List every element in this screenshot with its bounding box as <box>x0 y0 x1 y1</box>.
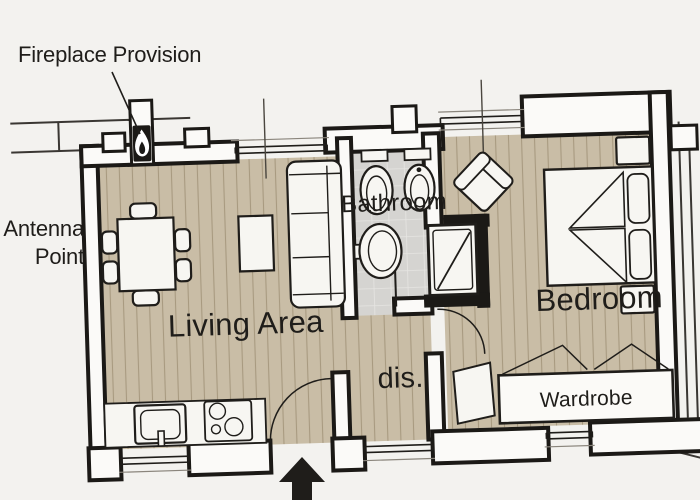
dining-table <box>117 218 175 292</box>
window-bedroom-top <box>438 109 525 130</box>
sofa <box>287 160 346 308</box>
double-bed <box>544 166 656 285</box>
fireplace-provision-label: Fireplace Provision <box>18 42 201 67</box>
wall-pilaster-left <box>103 133 126 152</box>
floor-plan: Wardrobe Living Area Bathroom Bedroom di… <box>0 0 700 500</box>
neighbour-wall-stub <box>671 125 698 150</box>
pillow <box>627 174 650 224</box>
wall-pilaster-right <box>185 128 210 147</box>
coffee-table <box>238 215 274 271</box>
dining-chair <box>103 261 119 283</box>
dining-chair <box>133 290 159 306</box>
wardrobe-label: Wardrobe <box>539 386 633 412</box>
wall-bottom-bedroom <box>590 419 700 455</box>
window-bedroom-bottom <box>544 431 594 447</box>
wall-bottom-kitchen <box>188 441 271 476</box>
bedroom-label: Bedroom <box>535 279 663 318</box>
nightstand <box>616 137 650 165</box>
living-area-label: Living Area <box>167 304 324 344</box>
antenna-point-label-line1: Antenna <box>3 216 85 241</box>
kitchen-sink <box>134 404 186 447</box>
bathroom-label: Bathroom <box>341 188 447 218</box>
window-living-top <box>231 138 329 154</box>
wall-bottom-hallway <box>432 428 549 464</box>
kitchen-counter <box>104 399 266 448</box>
dining-chair <box>130 203 156 219</box>
dining-chair <box>102 231 118 253</box>
wall-living-hallway <box>332 372 350 442</box>
floor-plan-page: Wardrobe Living Area Bathroom Bedroom di… <box>0 0 700 500</box>
pillow <box>629 230 652 280</box>
cooktop <box>204 400 252 441</box>
antenna-point-label-line2: Point <box>35 244 84 269</box>
window-hallway-bottom <box>363 444 435 460</box>
plan-group: Wardrobe Living Area Bathroom Bedroom di… <box>9 73 700 482</box>
wall-bottom-entry <box>332 438 365 471</box>
hallway-label: dis. <box>377 362 424 395</box>
dining-chair <box>176 259 192 281</box>
bedside-table <box>453 363 495 424</box>
vent-shaft <box>392 106 417 133</box>
shower <box>421 214 492 310</box>
wall-hallway-bedroom <box>426 353 445 439</box>
wall-bottom-corner <box>89 447 122 480</box>
dining-chair <box>175 229 191 251</box>
entrance-arrow-icon <box>279 457 325 500</box>
flame-icon <box>132 125 151 162</box>
window-kitchen-bottom <box>119 456 191 472</box>
